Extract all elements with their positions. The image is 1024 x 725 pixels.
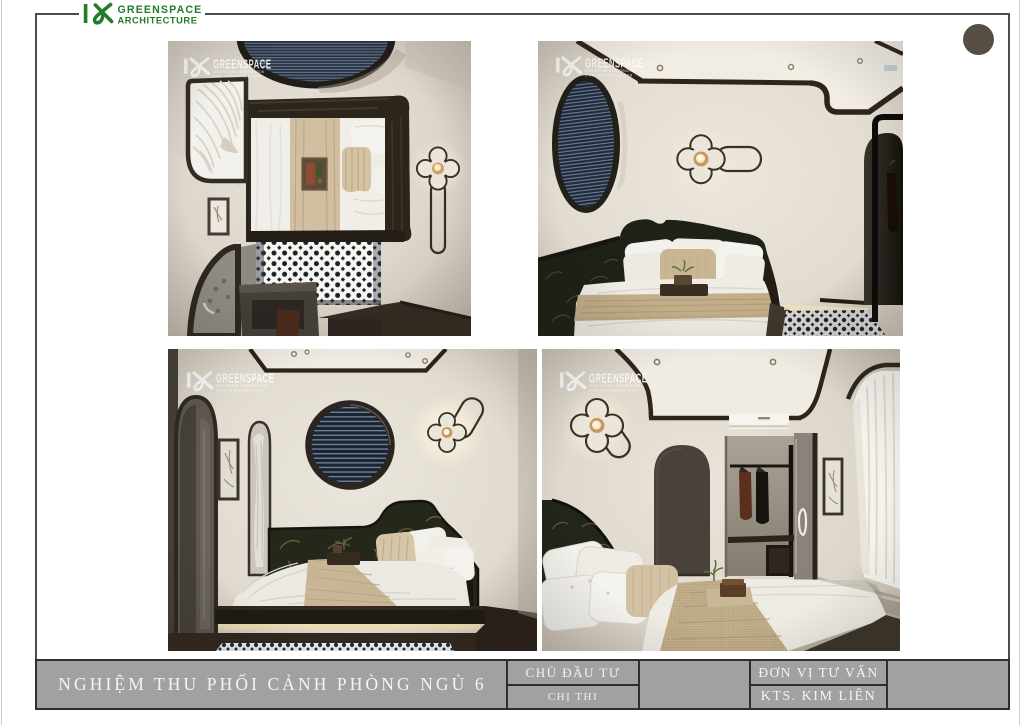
- svg-text:ARCHITECTURE: ARCHITECTURE: [118, 15, 198, 25]
- svg-text:GREENSPACE: GREENSPACE: [118, 4, 203, 16]
